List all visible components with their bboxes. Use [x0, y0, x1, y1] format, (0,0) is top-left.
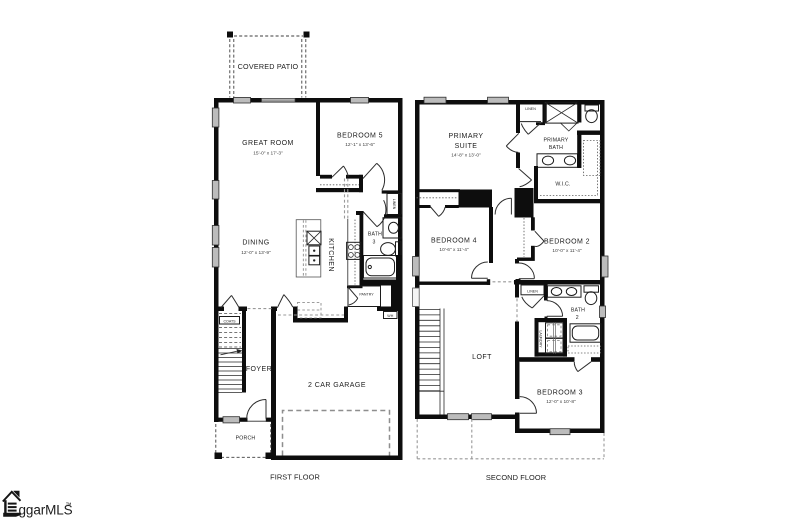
svg-text:12'-0" x 13'-9": 12'-0" x 13'-9"	[241, 250, 271, 256]
svg-text:10'-6" x 11'-4": 10'-6" x 11'-4"	[439, 247, 468, 253]
svg-text:SECOND FLOOR: SECOND FLOOR	[486, 473, 546, 482]
svg-text:2: 2	[576, 315, 579, 321]
svg-text:14'-8" x 13'-0": 14'-8" x 13'-0"	[451, 153, 481, 159]
svg-text:BATH: BATH	[368, 232, 382, 238]
svg-text:SUITE: SUITE	[455, 143, 478, 150]
svg-text:W.I.C.: W.I.C.	[555, 182, 570, 188]
svg-text:2 CAR GARAGE: 2 CAR GARAGE	[308, 382, 366, 389]
svg-text:LINEN: LINEN	[525, 107, 536, 111]
svg-text:PANTRY: PANTRY	[359, 293, 374, 297]
svg-text:FIRST FLOOR: FIRST FLOOR	[270, 473, 320, 482]
svg-text:BEDROOM 4: BEDROOM 4	[431, 238, 477, 245]
svg-text:12'-1" x 13'-6": 12'-1" x 13'-6"	[345, 142, 375, 148]
svg-text:3: 3	[372, 240, 375, 246]
svg-text:LAUNDRY: LAUNDRY	[539, 330, 543, 348]
svg-text:BEDROOM 3: BEDROOM 3	[537, 390, 583, 397]
svg-text:BATH: BATH	[549, 145, 563, 151]
svg-text:COVERED PATIO: COVERED PATIO	[238, 62, 299, 71]
svg-text:FOYER: FOYER	[246, 366, 272, 373]
svg-text:LOFT: LOFT	[472, 354, 492, 361]
svg-text:15'-0" x 17'-3": 15'-0" x 17'-3"	[253, 151, 283, 157]
svg-text:BEDROOM 5: BEDROOM 5	[337, 133, 383, 140]
svg-text:GREAT ROOM: GREAT ROOM	[242, 140, 294, 147]
svg-text:PRIMARY: PRIMARY	[544, 138, 569, 144]
svg-text:KITCHEN: KITCHEN	[327, 238, 334, 272]
svg-text:DINING: DINING	[242, 240, 269, 247]
svg-text:COATS: COATS	[223, 319, 236, 323]
svg-text:LINEN: LINEN	[392, 199, 396, 210]
svg-text:BATH: BATH	[571, 308, 585, 314]
svg-text:PRIMARY: PRIMARY	[449, 133, 484, 140]
svg-text:WH: WH	[387, 314, 393, 318]
svg-text:10'-0" x 11'-4": 10'-0" x 11'-4"	[552, 248, 581, 254]
svg-text:LINEN: LINEN	[527, 289, 538, 293]
svg-text:™: ™	[66, 502, 72, 509]
svg-text:PORCH: PORCH	[236, 436, 256, 442]
svg-text:BEDROOM 2: BEDROOM 2	[544, 239, 590, 246]
svg-text:12'-0" x 10'-8": 12'-0" x 10'-8"	[546, 399, 576, 405]
